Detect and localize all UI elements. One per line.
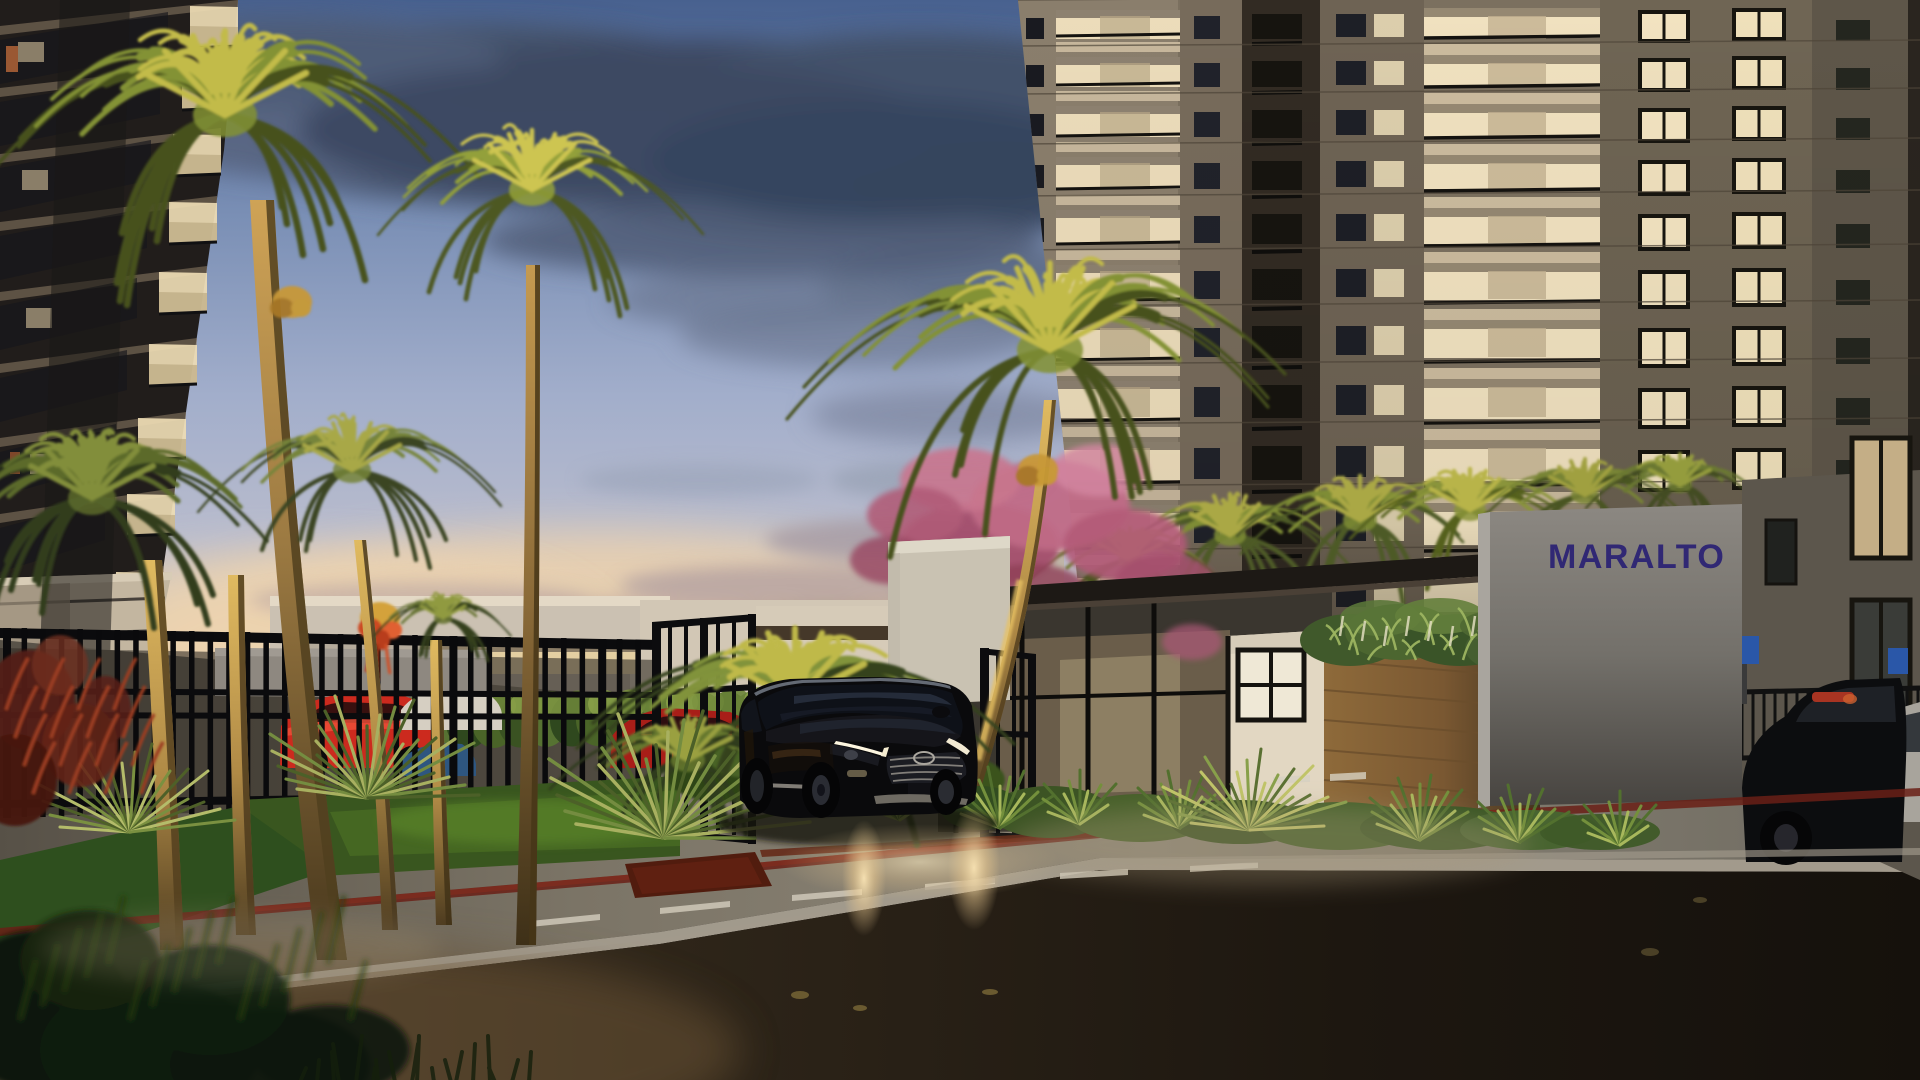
svg-text:MARALTO: MARALTO xyxy=(1548,538,1725,576)
